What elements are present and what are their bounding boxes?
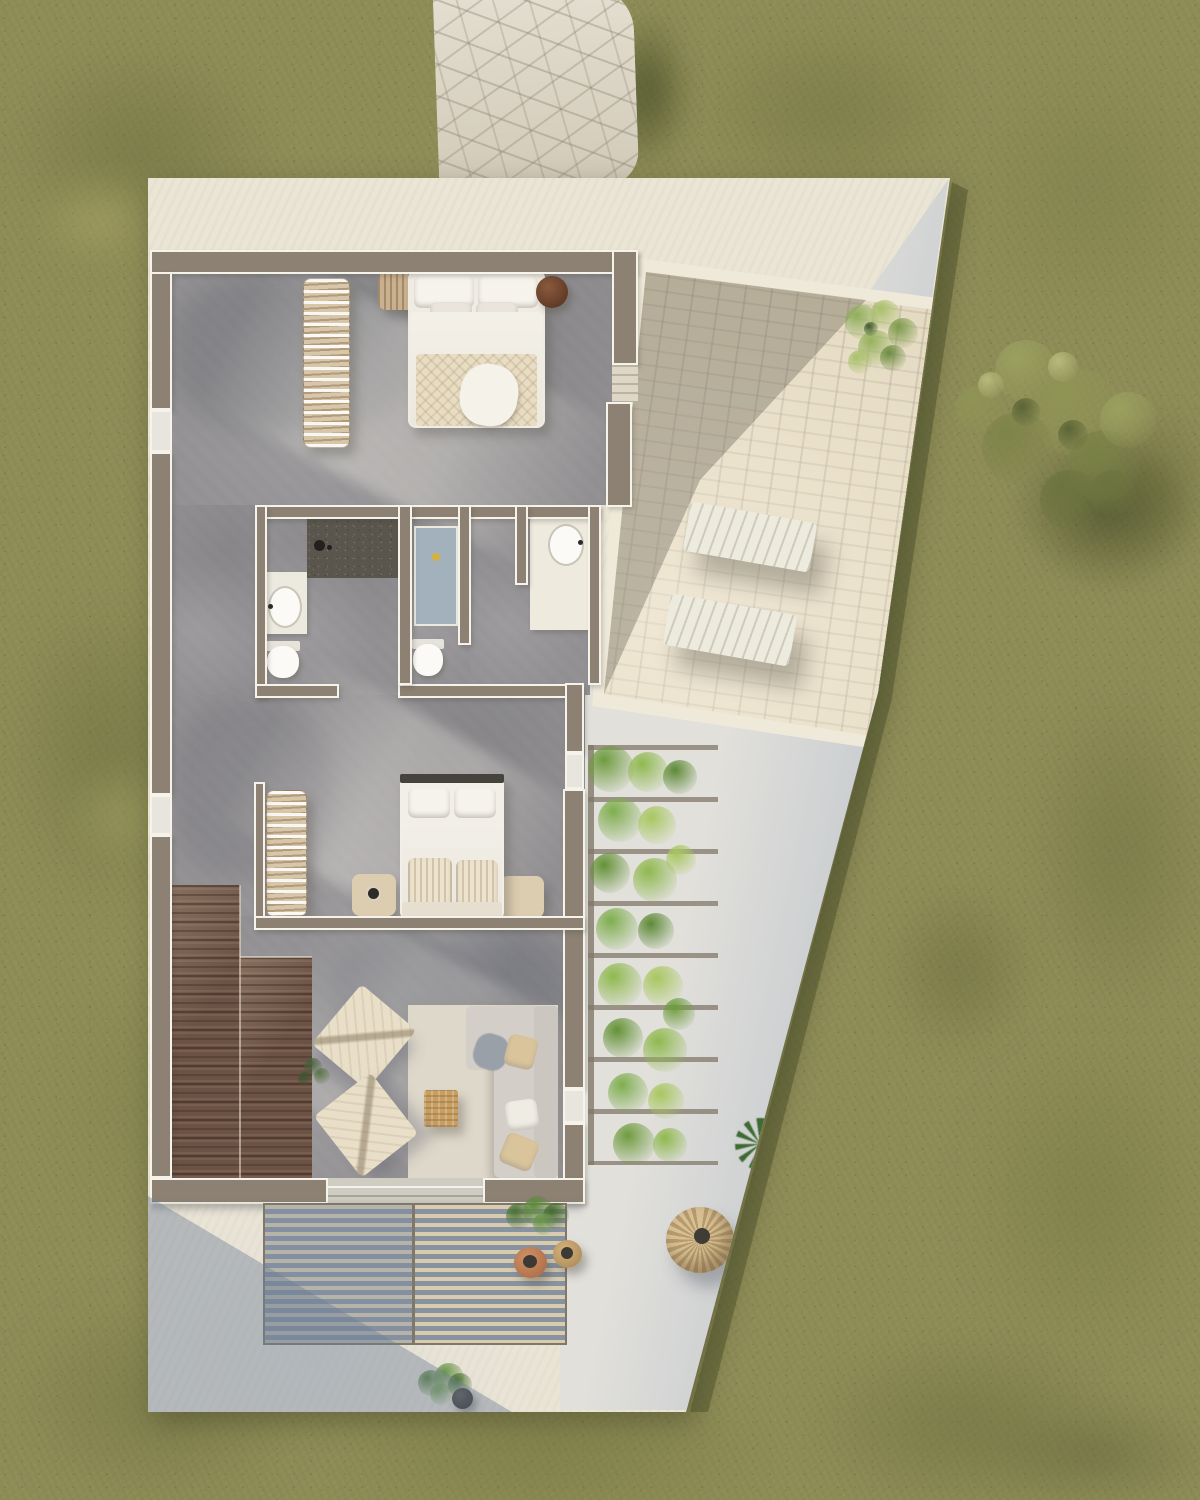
- aerial-floorplan-render: [0, 0, 1200, 1500]
- tree-foliage: [978, 372, 1004, 398]
- tree-foliage: [1048, 352, 1078, 382]
- tree-canopy: [0, 0, 1200, 1500]
- tree-foliage: [1090, 470, 1136, 516]
- tree-foliage: [1058, 420, 1088, 450]
- tree-foliage: [1012, 398, 1040, 426]
- tree-foliage: [1100, 392, 1156, 448]
